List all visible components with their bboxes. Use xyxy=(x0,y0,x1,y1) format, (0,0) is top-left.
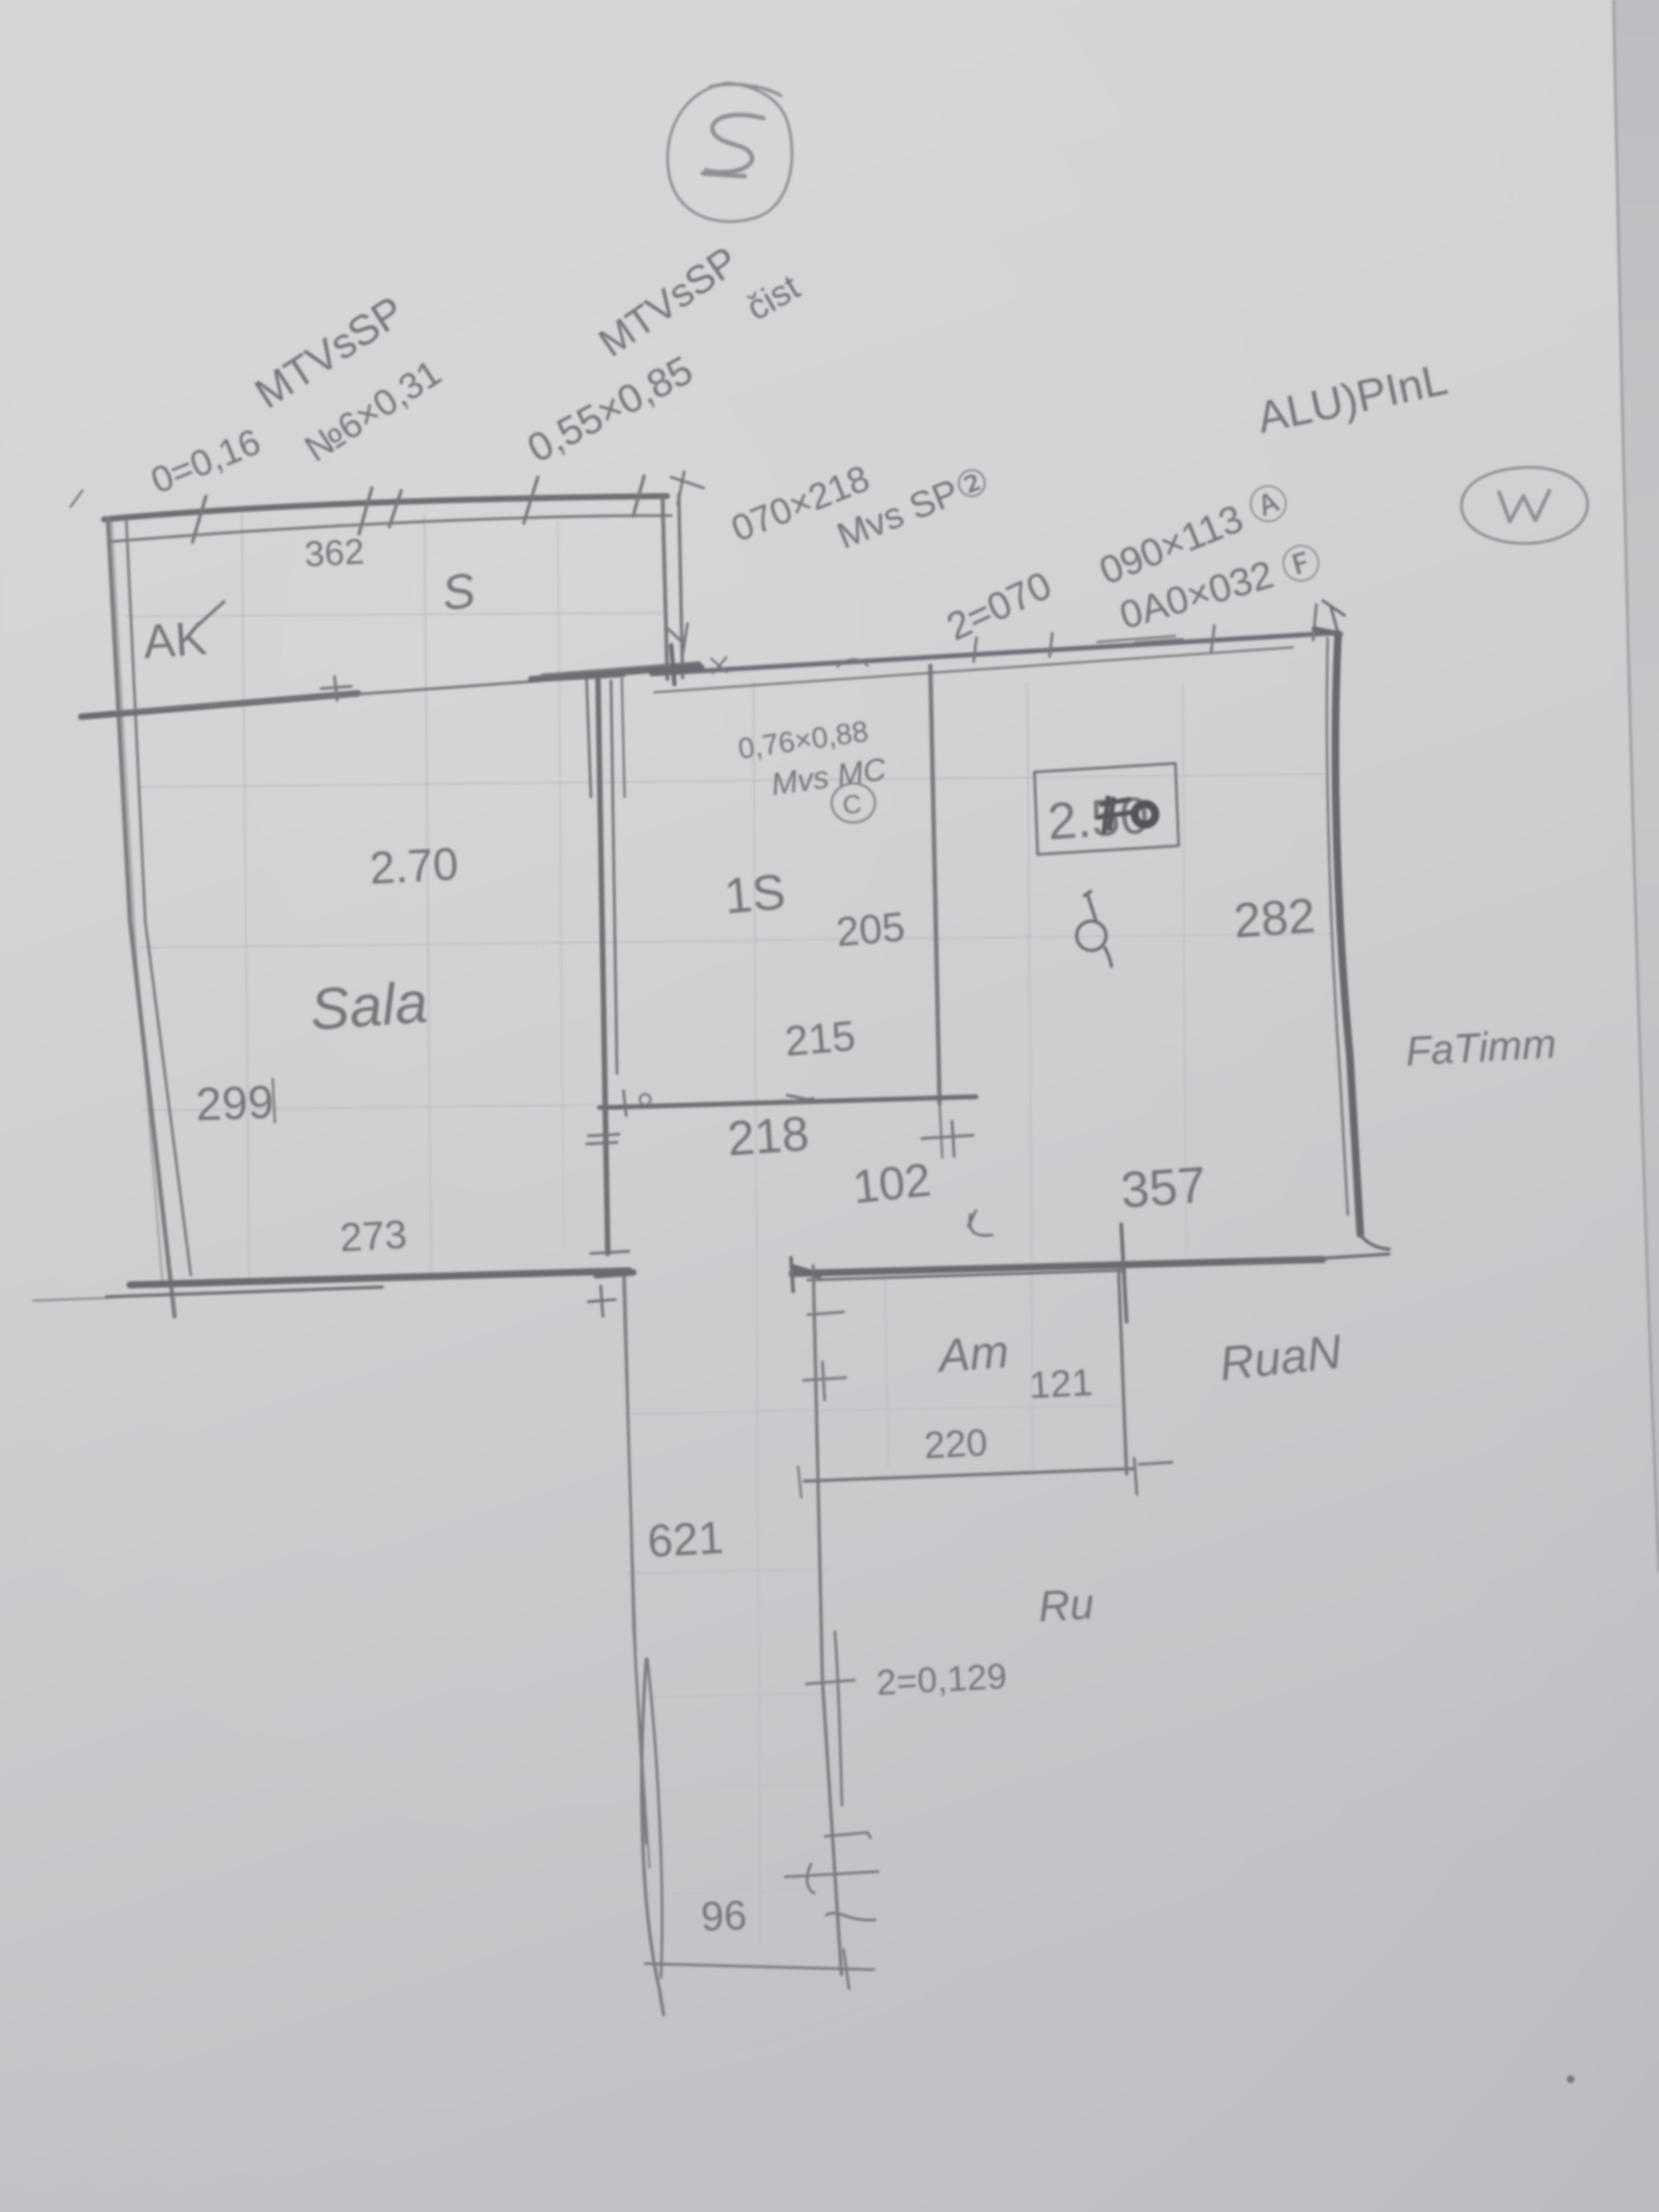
svg-text:205: 205 xyxy=(834,904,907,956)
svg-text:273: 273 xyxy=(339,1212,408,1260)
svg-text:621: 621 xyxy=(646,1512,725,1566)
svg-text:357: 357 xyxy=(1119,1156,1208,1219)
svg-text:C: C xyxy=(841,790,863,820)
svg-text:Ru: Ru xyxy=(1037,1579,1095,1630)
svg-text:220: 220 xyxy=(923,1421,988,1467)
svg-text:2.70: 2.70 xyxy=(368,838,459,893)
svg-text:102: 102 xyxy=(851,1154,934,1213)
svg-text:FaTimm: FaTimm xyxy=(1405,1021,1558,1075)
svg-text:1S: 1S xyxy=(722,864,788,924)
svg-text:299: 299 xyxy=(195,1076,275,1131)
svg-text:Am: Am xyxy=(934,1326,1010,1382)
svg-text:96: 96 xyxy=(700,1893,747,1940)
svg-text:362: 362 xyxy=(304,531,365,574)
svg-text:215: 215 xyxy=(783,1012,857,1065)
svg-text:121: 121 xyxy=(1028,1361,1094,1406)
svg-text:2=0,129: 2=0,129 xyxy=(876,1656,1008,1702)
svg-text:AK: AK xyxy=(142,610,209,668)
svg-text:218: 218 xyxy=(726,1107,811,1166)
svg-text:282: 282 xyxy=(1232,889,1317,948)
svg-text:Sala: Sala xyxy=(308,969,429,1043)
